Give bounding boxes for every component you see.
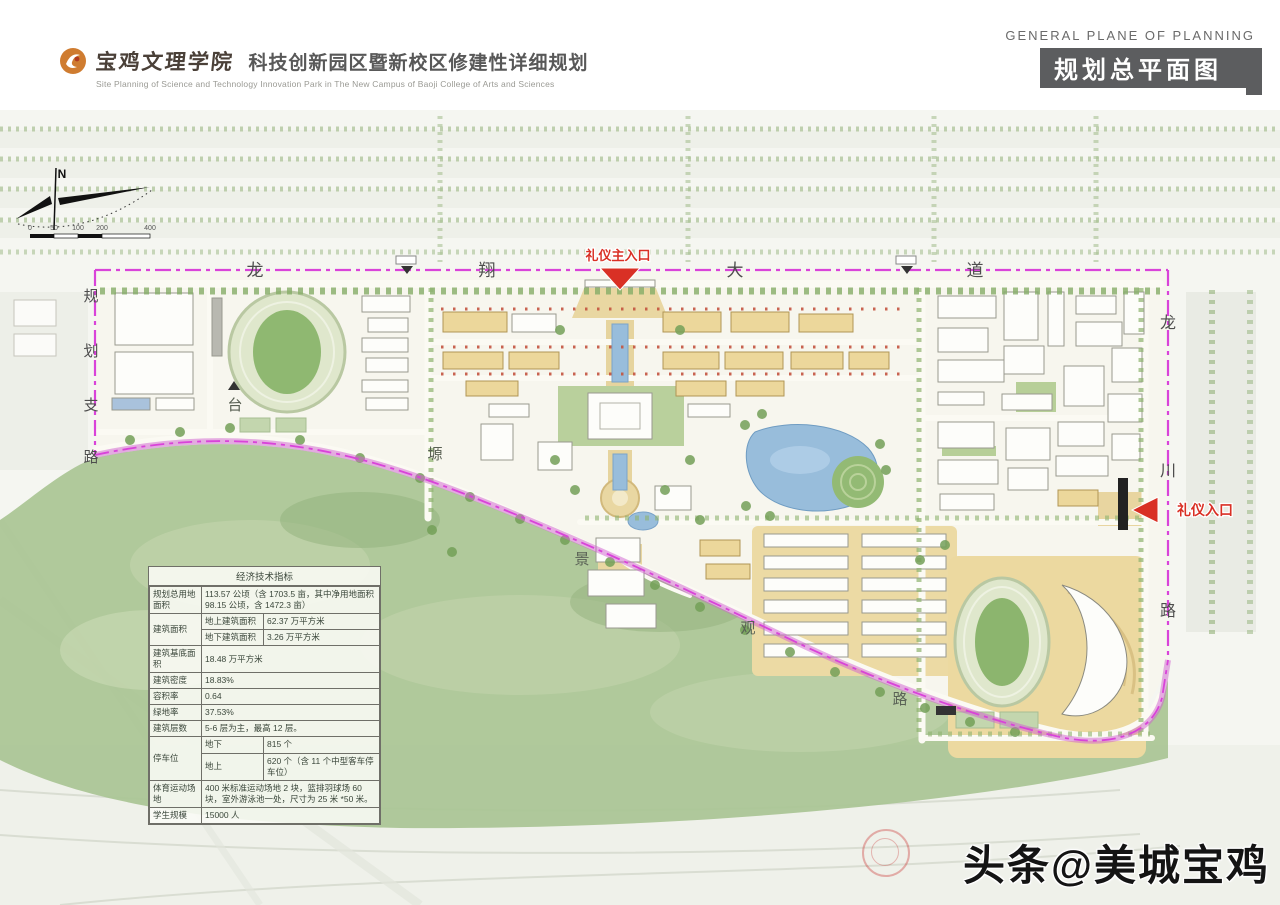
tree [875,687,885,697]
title-block: 宝鸡文理学院 科技创新园区暨新校区修建性详细规划 Site Planning o… [96,46,588,89]
slope-shade [280,492,440,548]
tree [765,511,775,521]
road-label-branch: 规 [83,288,98,305]
teaching-building [849,352,889,369]
building [938,296,996,318]
building [588,570,644,596]
main-building [588,393,652,439]
row-label: 体育运动场地 [150,780,202,807]
row-sublabel: 地下建筑面积 [202,630,264,646]
drawing-title-en-row: GENERAL PLANE OF PLANNING [1040,28,1262,43]
drawing-title-plate: GENERAL PLANE OF PLANNING 规划总平面图 [1040,28,1262,88]
dormitory [862,644,946,657]
sports-court [240,418,270,432]
road-label-landscape: 景 [574,551,589,568]
title-block-square-icon [1246,88,1262,95]
compass-north-label: N [58,167,67,181]
building [1076,322,1122,346]
teaching-building [736,381,784,396]
dormitory [764,600,848,613]
tree [650,580,660,590]
south-gate [936,706,956,715]
teaching-building [731,312,789,332]
building [14,300,56,326]
road-label-branch: 路 [83,449,98,466]
tree [175,427,185,437]
building [14,334,56,356]
tree [125,435,135,445]
scale-tick: 0 [28,225,32,232]
row-value: 620 个（含 11 个中型客车停车位） [264,753,380,780]
tree [570,485,580,495]
building [362,296,410,312]
teaching-building [791,352,843,369]
tree [875,439,885,449]
tree [915,555,925,565]
tree [660,485,670,495]
tree [427,525,437,535]
teaching-building [799,314,853,332]
building [706,564,750,579]
road-label-longchuan: 路 [1160,602,1176,620]
building [1056,456,1108,476]
building [1008,468,1048,490]
tree [785,647,795,657]
row-value: 15000 人 [202,807,380,823]
tree [555,325,565,335]
row-value: 400 米标准运动场地 2 块，篮排羽球场 60 块，室外游泳池一处，尺寸为 2… [202,780,380,807]
building [362,380,408,392]
teaching-building [663,352,719,369]
drawing-title-en: GENERAL PLANE OF PLANNING [1005,28,1255,43]
row-value: 0.64 [202,689,380,705]
road-label-branch: 划 [83,343,98,360]
row-value: 62.37 万平方米 [264,614,380,630]
teaching-building [725,352,783,369]
dormitory [862,534,946,547]
building [1108,394,1142,422]
circular-plaza-center [612,490,628,506]
east-gate-building [1118,478,1128,530]
road-label-branch: 支 [83,397,98,414]
city-block [1186,292,1256,632]
row-value: 5-6 层为主，最高 12 层。 [202,721,380,737]
row-label: 停车位 [150,737,202,780]
building [938,328,988,352]
teaching-building [443,352,503,369]
building [1004,346,1044,374]
dormitory [862,622,946,635]
building [1058,422,1104,446]
city-block [0,160,1280,178]
tree [740,420,750,430]
row-sublabel: 地上建筑面积 [202,614,264,630]
tree [685,455,695,465]
road-label-landscape: 路 [892,691,907,708]
tree [920,703,930,713]
building [1048,292,1064,346]
building [1004,292,1038,340]
city-block [0,222,1280,238]
scale-tick: 200 [96,225,108,232]
city-block [0,190,1280,208]
building [606,604,656,628]
row-value: 18.83% [202,673,380,689]
building [489,404,529,417]
road-label-longxiang: 大 [727,261,744,280]
teaching-building [663,312,721,332]
main-entrance-label: 礼仪主入口 [585,248,650,263]
planning-sheet: N 0 50 100 200 400 龙 翔 大 道 规 划 [0,0,1280,905]
secondary-entrance-sign [396,256,416,264]
scale-segment [30,234,54,238]
building [1112,434,1140,460]
building [1064,366,1104,406]
tree [830,667,840,677]
row-label: 绿地率 [150,705,202,721]
table-title: 经济技术指标 [149,567,380,586]
road-label-longxiang: 龙 [247,261,264,280]
building [366,358,408,372]
track-infield [975,598,1029,686]
project-title: 科技创新园区暨新校区修建性详细规划 [248,53,588,74]
road-label-longxiang: 翔 [479,261,496,280]
scale-segment [54,234,78,238]
scale-tick: 50 [50,225,58,232]
building [1002,394,1052,410]
tree [741,501,751,511]
building [938,460,998,484]
dormitory [764,578,848,591]
row-label: 建筑面积 [150,614,202,646]
track-infield [253,310,321,394]
scale-segment [102,234,150,238]
row-value: 815 个 [264,737,380,753]
tree [965,717,975,727]
road-label-landscape: 观 [740,620,755,637]
dormitory [764,534,848,547]
project-subtitle-en: Site Planning of Science and Technology … [96,79,588,89]
school-seal-watermark [862,829,910,877]
tree [757,409,767,419]
row-value: 113.57 公顷（含 1703.5 亩，其中净用地面积 98.15 公顷，含 … [202,587,380,614]
building [368,318,408,332]
amphitheater-green [832,456,884,508]
row-label: 规划总用地面积 [150,587,202,614]
terrain-label-tableland: 塬 [427,446,442,463]
building [156,398,194,410]
tree [881,465,891,475]
scale-tick: 400 [144,225,156,232]
college-name: 宝鸡文理学院 [94,46,235,76]
building [366,398,408,410]
grandstand [212,298,222,356]
row-label: 建筑密度 [150,673,202,689]
road-label-longchuan: 川 [1160,463,1176,480]
city-block [0,130,1280,148]
building [688,404,730,417]
scale-tick: 100 [72,225,84,232]
building [481,424,513,460]
row-value: 18.48 万平方米 [202,646,380,673]
school-seal-inner-ring [871,838,899,866]
tree [675,325,685,335]
tree [550,455,560,465]
row-label: 容积率 [150,689,202,705]
row-value: 3.26 万平方米 [264,630,380,646]
teaching-building [466,381,518,396]
tree [940,540,950,550]
building [940,494,994,510]
building [700,540,740,556]
side-entrance-label: 礼仪入口 [1177,502,1233,518]
tree [225,423,235,433]
row-sublabel: 地下 [202,737,264,753]
row-label: 学生规模 [150,807,202,823]
road-label-longchuan: 龙 [1160,314,1176,332]
tree [695,602,705,612]
building-blue-roof [112,398,150,410]
row-sublabel: 地上 [202,753,264,780]
building [362,338,408,352]
secondary-entrance-sign [896,256,916,264]
road-label-longxiang: 道 [967,261,984,280]
economic-indicators-table: 经济技术指标 规划总用地面积 113.57 公顷（含 1703.5 亩，其中净用… [148,566,381,825]
building [115,293,193,345]
brand-block: 宝鸡文理学院 科技创新园区暨新校区修建性详细规划 Site Planning o… [58,46,588,89]
tree [447,547,457,557]
dormitory [862,556,946,569]
dormitory [862,578,946,591]
row-label: 建筑层数 [150,721,202,737]
terrain-label-tableland: 台 [227,397,242,414]
building [1006,428,1050,460]
toutiao-watermark: 头条@美城宝鸡 [963,832,1270,893]
drawing-title-cn: 规划总平面图 [1040,48,1262,88]
sports-court [276,418,306,432]
building [938,422,994,448]
building [1058,490,1098,506]
row-label: 建筑基底面积 [150,646,202,673]
dormitory [764,556,848,569]
scale-segment [78,234,102,238]
sheet-header: 宝鸡文理学院 科技创新园区暨新校区修建性详细规划 Site Planning o… [0,0,1280,110]
building [1076,296,1116,314]
axis-pool [613,454,627,490]
college-logo-icon [58,46,88,76]
tree [695,515,705,525]
teaching-building [443,312,507,332]
building [115,352,193,394]
building [938,360,1004,382]
building [1112,348,1142,382]
teaching-building [676,381,726,396]
teaching-building [509,352,559,369]
building [512,314,556,332]
axis-pool [612,324,628,382]
building [938,392,984,405]
pond [628,512,658,530]
lake-highlight [770,446,830,474]
row-value: 37.53% [202,705,380,721]
dormitory [862,600,946,613]
